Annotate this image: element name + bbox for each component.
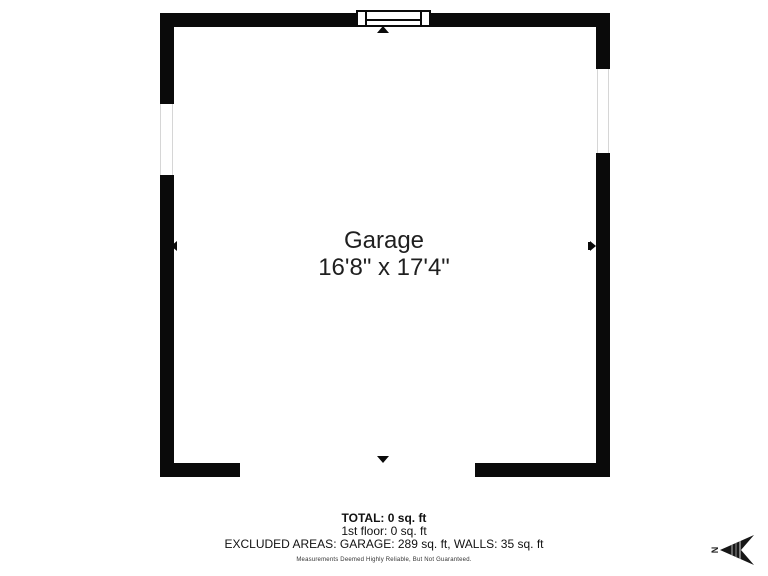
right-window-frame-line (608, 69, 609, 153)
compass-north-label: N (710, 547, 720, 554)
floor-plan-canvas: Garage 16'8" x 17'4" TOTAL: 0 sq. ft 1st… (0, 0, 768, 576)
top-window-icon (356, 10, 431, 27)
right-window-frame-line (597, 69, 598, 153)
excluded-areas-text: EXCLUDED AREAS: GARAGE: 289 sq. ft, WALL… (0, 538, 768, 551)
room-dimensions: 16'8" x 17'4" (0, 254, 768, 281)
bottom-direction-arrow-icon (377, 456, 389, 463)
summary-footer: TOTAL: 0 sq. ft 1st floor: 0 sq. ft EXCL… (0, 512, 768, 563)
compass-arrow-shape (720, 535, 754, 565)
right-wall-lower-segment (596, 153, 610, 477)
room-label: Garage 16'8" x 17'4" (0, 227, 768, 281)
compass-north-icon: N (700, 528, 762, 572)
right-wall-upper-segment (596, 13, 610, 69)
window-end-cap (420, 12, 422, 25)
left-wall-lower-segment (160, 175, 174, 477)
left-window-frame-line (172, 104, 173, 175)
room-name: Garage (0, 227, 768, 254)
top-wall-left-segment (160, 13, 358, 27)
bottom-wall-left-segment (160, 463, 240, 477)
top-direction-arrow-icon (377, 26, 389, 33)
left-wall-upper-segment (160, 13, 174, 104)
top-wall-right-segment (430, 13, 610, 27)
disclaimer-text: Measurements Deemed Highly Reliable, But… (0, 557, 768, 563)
left-window-frame-line (160, 104, 161, 175)
window-mullion-line (367, 19, 420, 21)
bottom-wall-right-segment (475, 463, 610, 477)
